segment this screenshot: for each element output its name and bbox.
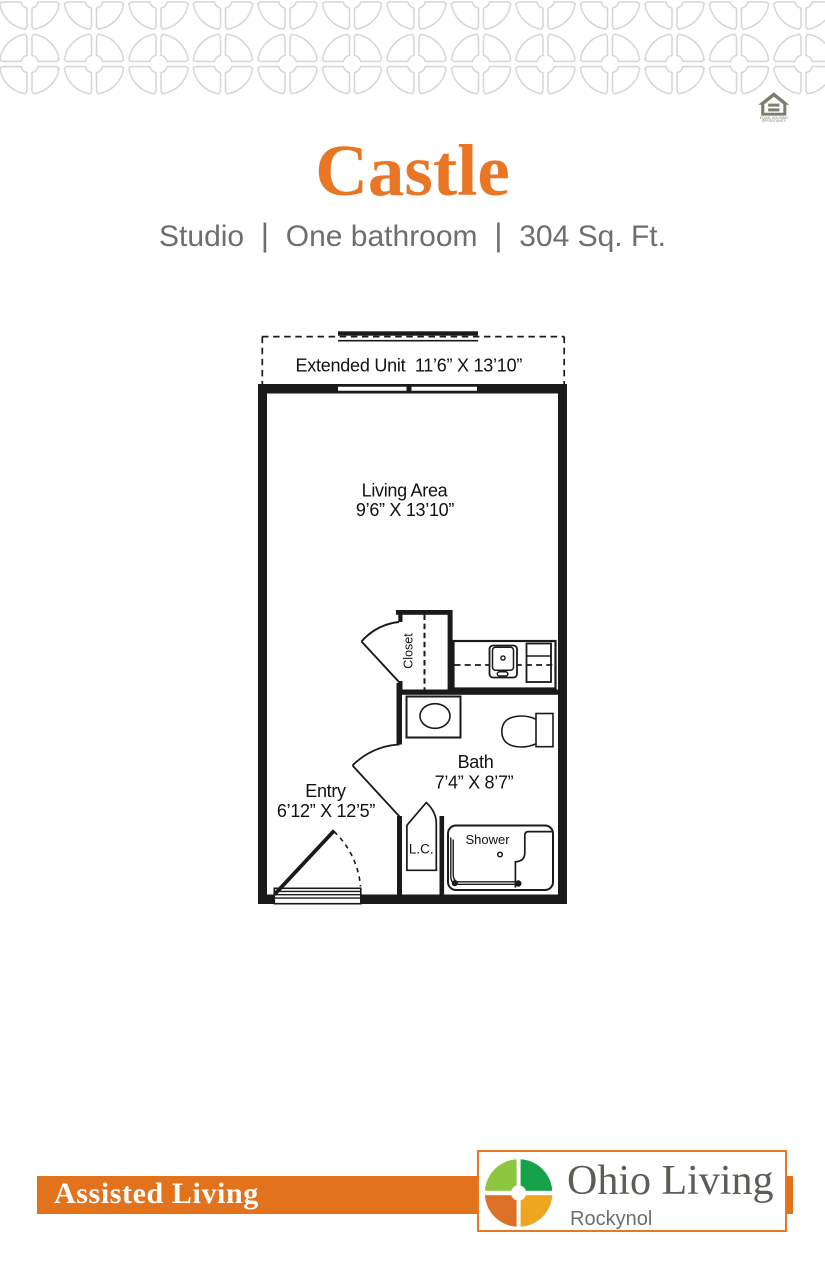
svg-text:9’6” X 13’10”: 9’6” X 13’10” [356, 500, 454, 520]
svg-text:Closet: Closet [402, 633, 416, 669]
svg-text:L.C.: L.C. [409, 842, 434, 857]
svg-text:Shower: Shower [465, 832, 510, 847]
svg-text:Entry: Entry [305, 781, 346, 801]
svg-text:Extended Unit 11’6” X 13’10”: Extended Unit 11’6” X 13’10” [296, 356, 523, 376]
svg-text:7’4” X 8’7”: 7’4” X 8’7” [435, 772, 514, 792]
svg-text:Bath: Bath [458, 752, 494, 772]
svg-text:Living Area: Living Area [362, 481, 449, 501]
svg-text:6’12” X 12’5”: 6’12” X 12’5” [277, 801, 375, 821]
svg-text:OPPORTUNITY: OPPORTUNITY [762, 119, 787, 123]
